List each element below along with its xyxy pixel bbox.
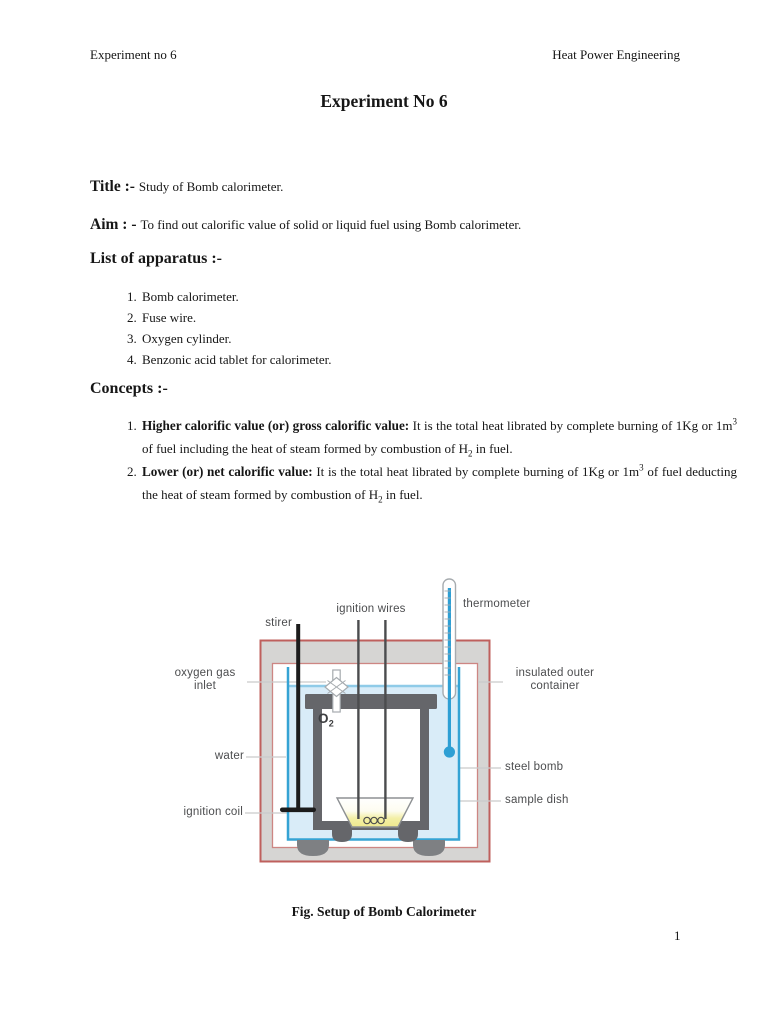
title-line: Title :-Study of Bomb calorimeter.	[90, 178, 690, 196]
bomb-calorimeter-figure: stirer ignition wires thermometer oxygen…	[163, 575, 615, 875]
label-steel-bomb: steel bomb	[505, 761, 563, 774]
header-right: Heat Power Engineering	[552, 47, 680, 63]
concepts-list: Higher calorific value (or) gross calori…	[90, 415, 737, 507]
label-insulated-outer-container: insulated outer container	[503, 667, 607, 693]
ignition-wire	[384, 620, 386, 819]
bomb-lid-shape	[305, 694, 437, 709]
header-left: Experiment no 6	[90, 47, 177, 63]
label-water: water	[184, 750, 244, 763]
apparatus-list: Bomb calorimeter. Fuse wire. Oxygen cyli…	[90, 286, 700, 370]
label-thermometer: thermometer	[463, 598, 530, 611]
apparatus-item: Fuse wire.	[140, 307, 700, 328]
concepts-heading: Concepts :-	[90, 380, 690, 398]
title-label: Title :-	[90, 178, 135, 195]
stirrer-rod	[296, 624, 300, 809]
apparatus-heading: List of apparatus :-	[90, 250, 690, 268]
stirrer-paddle	[280, 808, 316, 813]
aim-line: Aim : -To find out calorific value of so…	[90, 216, 690, 234]
apparatus-item: Benzonic acid tablet for calorimeter.	[140, 349, 700, 370]
thermometer-bulb	[444, 746, 455, 757]
concept-term: Lower (or) net calorific value:	[142, 464, 313, 479]
vessel-foot	[297, 840, 329, 856]
label-ignition-coil: ignition coil	[163, 806, 243, 819]
page-header: Experiment no 6 Heat Power Engineering	[90, 47, 680, 63]
concept-term: Higher calorific value (or) gross calori…	[142, 418, 409, 433]
ignition-wire	[357, 620, 359, 819]
apparatus-item: Bomb calorimeter.	[140, 286, 700, 307]
concept-item: Lower (or) net calorific value: It is th…	[140, 461, 737, 506]
bomb-foot	[398, 830, 418, 842]
aim-text: To find out calorific value of solid or …	[141, 217, 522, 232]
aim-label: Aim : -	[90, 216, 137, 233]
apparatus-item: Oxygen cylinder.	[140, 328, 700, 349]
label-o2: O2	[318, 712, 334, 731]
document-page: Experiment no 6 Heat Power Engineering E…	[0, 0, 768, 1024]
label-ignition-wires: ignition wires	[323, 603, 419, 616]
label-stirer: stirer	[218, 617, 292, 630]
vessel-foot	[413, 840, 445, 856]
label-sample-dish: sample dish	[505, 794, 569, 807]
bomb-foot	[332, 830, 352, 842]
title-text: Study of Bomb calorimeter.	[139, 179, 283, 194]
figure-caption: Fig. Setup of Bomb Calorimeter	[0, 904, 768, 920]
concept-item: Higher calorific value (or) gross calori…	[140, 415, 737, 460]
label-oxygen-gas-inlet: oxygen gas inlet	[163, 667, 247, 693]
document-title: Experiment No 6	[0, 91, 768, 112]
page-number: 1	[674, 928, 681, 944]
